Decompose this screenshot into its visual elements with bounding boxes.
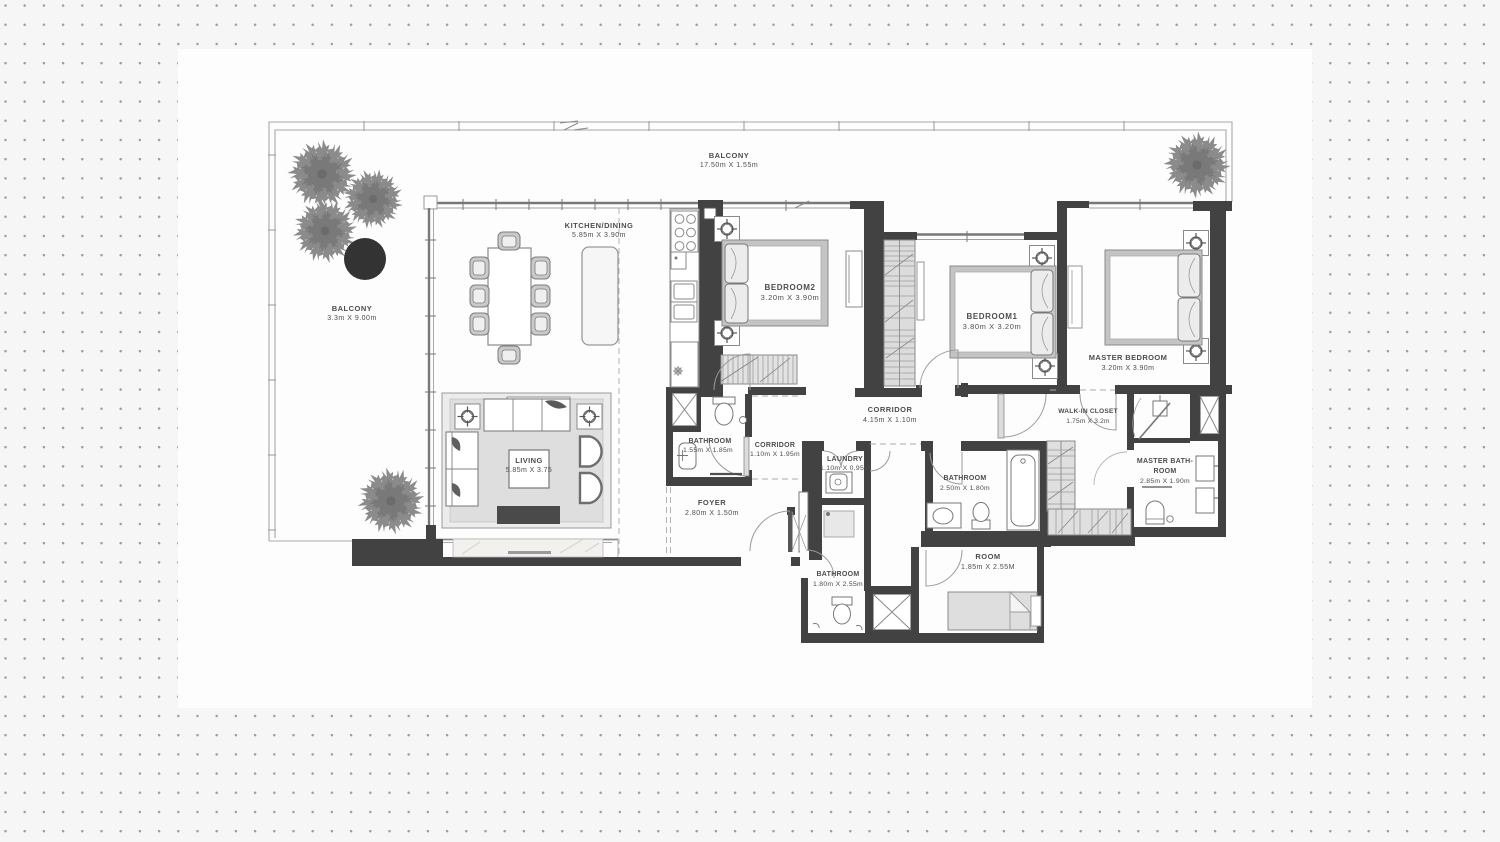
- svg-text:1.80m X 2.55m: 1.80m X 2.55m: [813, 581, 863, 588]
- svg-text:ROOM: ROOM: [1154, 468, 1177, 475]
- svg-text:BEDROOM1: BEDROOM1: [966, 312, 1017, 321]
- svg-text:BATHROOM: BATHROOM: [816, 571, 859, 578]
- svg-text:MASTER BEDROOM: MASTER BEDROOM: [1089, 353, 1168, 362]
- svg-text:3.20m X 3.90m: 3.20m X 3.90m: [1102, 365, 1155, 372]
- svg-text:2.85m X 1.90m: 2.85m X 1.90m: [1140, 478, 1190, 485]
- svg-text:1.75m X 3.2m: 1.75m X 3.2m: [1066, 418, 1110, 425]
- svg-text:BATHROOM: BATHROOM: [943, 475, 986, 482]
- svg-text:ROOM: ROOM: [975, 552, 1000, 561]
- svg-text:WALK-IN CLOSET: WALK-IN CLOSET: [1058, 408, 1118, 415]
- svg-text:5.85m X 3.90m: 5.85m X 3.90m: [572, 232, 626, 239]
- svg-text:BEDROOM2: BEDROOM2: [764, 283, 815, 292]
- svg-text:BALCONY: BALCONY: [332, 304, 373, 313]
- svg-text:2.80m X 1.50m: 2.80m X 1.50m: [685, 510, 739, 517]
- svg-text:1.85m X 2.55M: 1.85m X 2.55M: [961, 564, 1015, 571]
- svg-text:FOYER: FOYER: [698, 498, 726, 507]
- svg-text:3.3m X 9.00m: 3.3m X 9.00m: [327, 315, 377, 322]
- svg-text:LIVING: LIVING: [515, 456, 542, 465]
- svg-text:1.10m X 1.95m: 1.10m X 1.95m: [750, 451, 800, 458]
- svg-text:CORRIDOR: CORRIDOR: [755, 442, 796, 449]
- svg-text:1.10m X 0.95M: 1.10m X 0.95M: [820, 465, 870, 472]
- svg-text:17.50m X 1.55m: 17.50m X 1.55m: [700, 162, 758, 169]
- svg-text:MASTER BATH-: MASTER BATH-: [1137, 458, 1194, 465]
- svg-text:BALCONY: BALCONY: [709, 151, 750, 160]
- svg-text:CORRIDOR: CORRIDOR: [868, 405, 913, 414]
- svg-text:1.55m X 1.85m: 1.55m X 1.85m: [683, 447, 733, 454]
- svg-text:2.50m X 1.80m: 2.50m X 1.80m: [940, 485, 990, 492]
- svg-text:BATHROOM: BATHROOM: [688, 438, 731, 445]
- svg-text:4.15m X 1.10m: 4.15m X 1.10m: [863, 417, 917, 424]
- svg-text:5.85m X 3.75: 5.85m X 3.75: [506, 467, 552, 474]
- svg-text:LAUNDRY: LAUNDRY: [827, 456, 863, 463]
- svg-text:KITCHEN/DINING: KITCHEN/DINING: [565, 221, 634, 230]
- svg-text:3.80m X 3.20m: 3.80m X 3.20m: [963, 322, 1022, 331]
- svg-text:3.20m X 3.90m: 3.20m X 3.90m: [761, 293, 820, 302]
